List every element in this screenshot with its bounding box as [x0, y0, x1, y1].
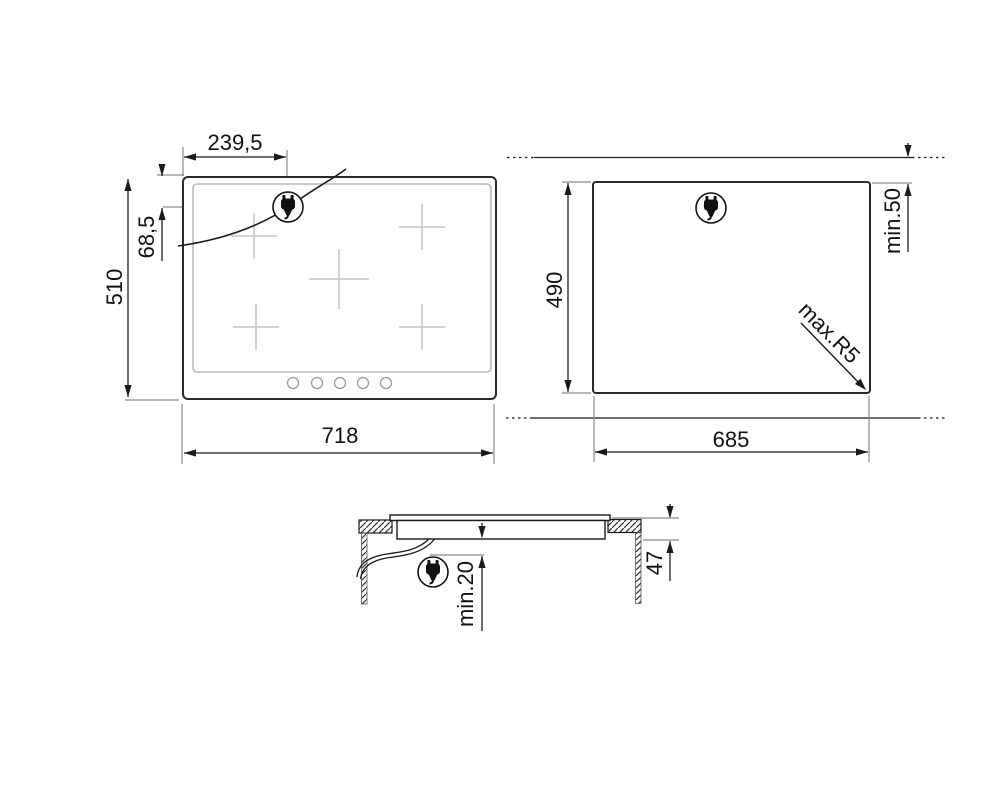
control-button — [288, 378, 299, 389]
power-plug-icon — [418, 557, 448, 587]
cutout-rectangle — [593, 182, 870, 393]
dim-label-bottom-clearance: min.20 — [455, 561, 477, 627]
power-plug-icon — [696, 193, 726, 223]
cutout-face-right — [636, 533, 642, 604]
section-view — [357, 504, 679, 631]
dim-label-cutout-width: 685 — [713, 429, 750, 451]
dim-label-plug-offset-x: 239,5 — [207, 132, 262, 154]
worktop-section-left — [359, 520, 392, 533]
dim-label-front-width: 718 — [322, 425, 359, 447]
dim-label-rear-clearance: min.50 — [882, 188, 904, 254]
dim-label-cutout-height: 490 — [544, 272, 566, 309]
control-button — [358, 378, 369, 389]
installation-diagram: 239,5 510 68,5 718 490 685 min.50 max.R5… — [0, 0, 1000, 800]
worktop-section-right — [608, 520, 641, 533]
control-button — [312, 378, 323, 389]
dim-label-built-in-depth: 47 — [644, 551, 666, 575]
dim-label-plug-offset-y: 68,5 — [136, 216, 158, 259]
diagram-canvas — [0, 0, 1000, 800]
power-plug-icon — [273, 192, 303, 222]
control-button — [381, 378, 392, 389]
control-button — [335, 378, 346, 389]
dim-label-front-height: 510 — [104, 269, 126, 306]
hob-body-section — [397, 521, 605, 540]
hob-glass-section — [390, 515, 610, 521]
front-view — [124, 147, 496, 464]
